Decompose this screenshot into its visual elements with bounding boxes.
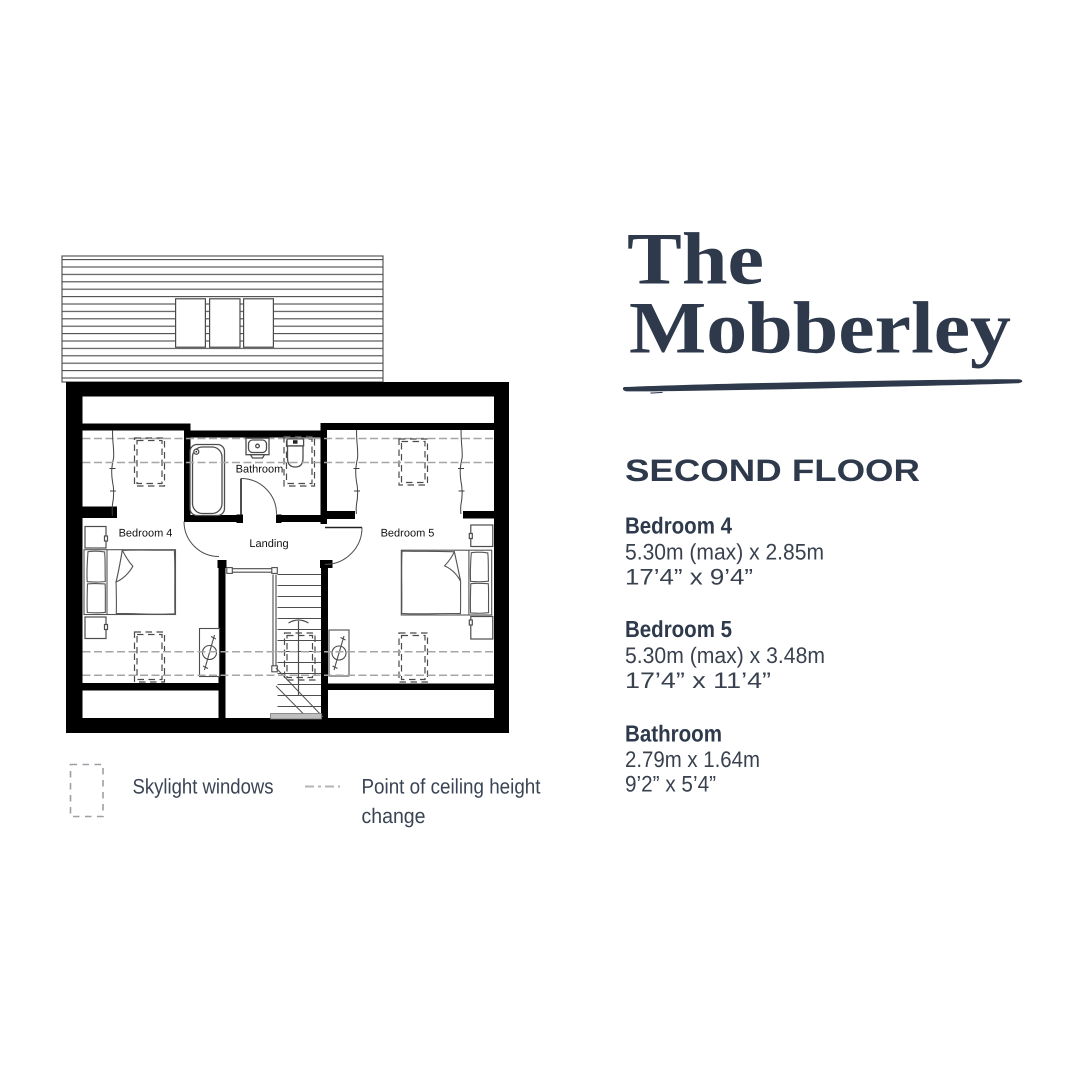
svg-text:SECOND FLOOR: SECOND FLOOR bbox=[625, 453, 920, 488]
svg-text:Point of ceiling height: Point of ceiling height bbox=[362, 776, 541, 799]
svg-text:Bedroom 4: Bedroom 4 bbox=[625, 513, 732, 539]
svg-text:9’2” x 5’4”: 9’2” x 5’4” bbox=[625, 772, 716, 797]
svg-text:Bedroom 5: Bedroom 5 bbox=[625, 616, 732, 642]
svg-text:Mobberley: Mobberley bbox=[629, 288, 1011, 370]
svg-text:change: change bbox=[362, 805, 426, 828]
svg-text:Bedroom 4: Bedroom 4 bbox=[119, 528, 173, 540]
svg-text:Bedroom 5: Bedroom 5 bbox=[381, 528, 435, 540]
svg-text:17’4” x 9’4”: 17’4” x 9’4” bbox=[625, 565, 753, 590]
svg-text:5.30m (max) x 3.48m: 5.30m (max) x 3.48m bbox=[625, 643, 825, 668]
svg-text:Landing: Landing bbox=[249, 538, 288, 550]
svg-text:2.79m x 1.64m: 2.79m x 1.64m bbox=[625, 747, 760, 772]
svg-text:Bathroom: Bathroom bbox=[236, 464, 284, 476]
svg-text:5.30m (max) x 2.85m: 5.30m (max) x 2.85m bbox=[625, 540, 824, 565]
svg-text:Skylight windows: Skylight windows bbox=[133, 776, 274, 799]
svg-text:17’4” x 11’4”: 17’4” x 11’4” bbox=[625, 668, 771, 693]
svg-text:Bathroom: Bathroom bbox=[625, 721, 722, 747]
